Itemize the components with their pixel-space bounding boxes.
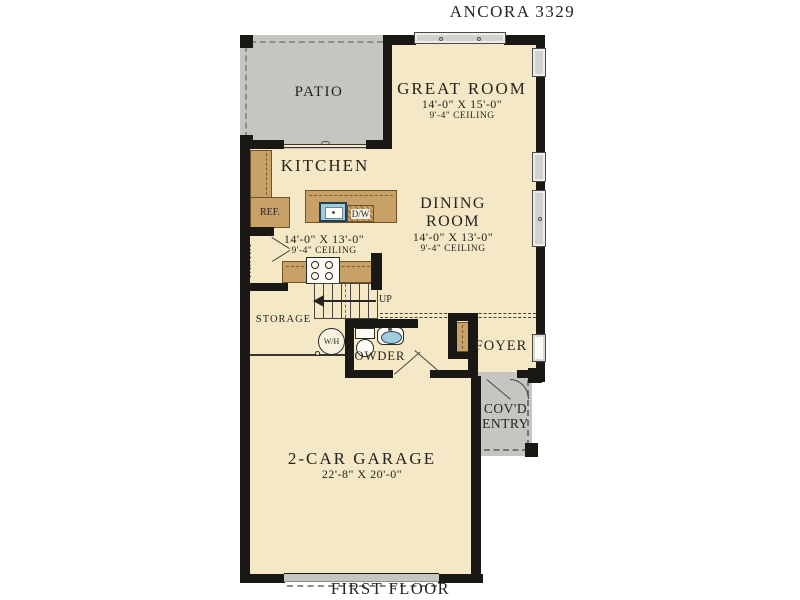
- storage-label: STORAGE: [241, 314, 326, 326]
- stairs-up-arrow: [324, 300, 376, 302]
- dishwasher: D/W: [347, 205, 374, 222]
- covered-entry-label-line1: COV'D: [479, 401, 532, 416]
- patio-dashed-edge-top: [250, 41, 383, 43]
- dining-room-label-line1: DINING: [393, 195, 513, 213]
- wall: [536, 76, 545, 153]
- foyer-label: FOYER: [472, 338, 530, 354]
- patio-sliding-door: [284, 144, 367, 148]
- great-room-ceiling: 9'-4" CEILING: [392, 111, 532, 122]
- wall: [248, 283, 288, 291]
- refrigerator-label: REF.: [260, 207, 280, 218]
- great-room-label: GREAT ROOM: [392, 79, 532, 98]
- kitchen-ceiling: 9'-4" CEILING: [262, 246, 386, 257]
- dining-room-dims: 14'-0" X 13'-0": [393, 231, 513, 244]
- plan-title: ANCORA 3329: [395, 2, 630, 21]
- dining-room-label-line2: ROOM: [393, 213, 513, 231]
- wall: [240, 574, 285, 583]
- wall: [525, 443, 538, 457]
- wall: [383, 35, 392, 149]
- garage-label: 2-CAR GARAGE: [272, 449, 452, 468]
- covered-entry-label-line2: ENTRY: [479, 416, 532, 431]
- wall: [430, 370, 472, 378]
- great-room-dims: 14'-0" X 15'-0": [392, 98, 532, 111]
- wall: [345, 319, 418, 328]
- water-heater-label: W/H: [324, 337, 340, 346]
- patio-label: PATIO: [269, 84, 369, 101]
- window: [532, 190, 546, 247]
- wall: [536, 35, 545, 49]
- range-cooktop: [306, 257, 340, 284]
- covered-entry-label-block: COV'D ENTRY: [479, 401, 532, 431]
- stairs-up-label: UP: [379, 294, 399, 305]
- patio-sliding-door-handle: [321, 141, 330, 144]
- wall: [366, 140, 392, 149]
- water-heater-valve: [315, 351, 320, 356]
- wall: [536, 246, 545, 336]
- wall: [517, 370, 531, 378]
- toilet-tank: [355, 328, 375, 339]
- kitchen-dims-block: 14'-0" X 13'-0" 9'-4" CEILING: [262, 233, 386, 257]
- sheet-title: FIRST FLOOR: [288, 580, 493, 598]
- kitchen-label: KITCHEN: [263, 156, 387, 175]
- dining-room-label-block: DINING ROOM 14'-0" X 13'-0" 9'-4" CEILIN…: [393, 195, 513, 255]
- window: [532, 152, 546, 182]
- wall: [240, 35, 253, 48]
- refrigerator: REF.: [250, 197, 290, 228]
- great-room-label-block: GREAT ROOM 14'-0" X 15'-0" 9'-4" CEILING: [392, 79, 532, 122]
- powder-sink: [377, 327, 404, 345]
- patio-dashed-edge-left: [245, 46, 247, 138]
- wall: [345, 370, 393, 378]
- dishwasher-label: D/W: [351, 209, 371, 219]
- window: [532, 48, 546, 77]
- dining-room-ceiling: 9'-4" CEILING: [393, 244, 513, 255]
- garage-label-block: 2-CAR GARAGE 22'-8" X 20'-0": [272, 449, 452, 481]
- island-sink: [319, 202, 347, 222]
- window: [414, 32, 506, 44]
- kitchen-dims: 14'-0" X 13'-0": [262, 233, 386, 246]
- wall: [240, 138, 250, 583]
- garage-dims: 22'-8" X 20'-0": [272, 468, 452, 481]
- front-door: [532, 334, 546, 362]
- wall: [371, 253, 382, 290]
- entry-dashed-edge-bottom: [484, 449, 528, 451]
- stairs-up-arrowhead: [313, 295, 324, 307]
- floor-plan: ANCORA 3329 REF. PANTRY D/W: [0, 0, 800, 600]
- wall: [448, 313, 477, 321]
- powder-label: POWDER: [340, 349, 412, 363]
